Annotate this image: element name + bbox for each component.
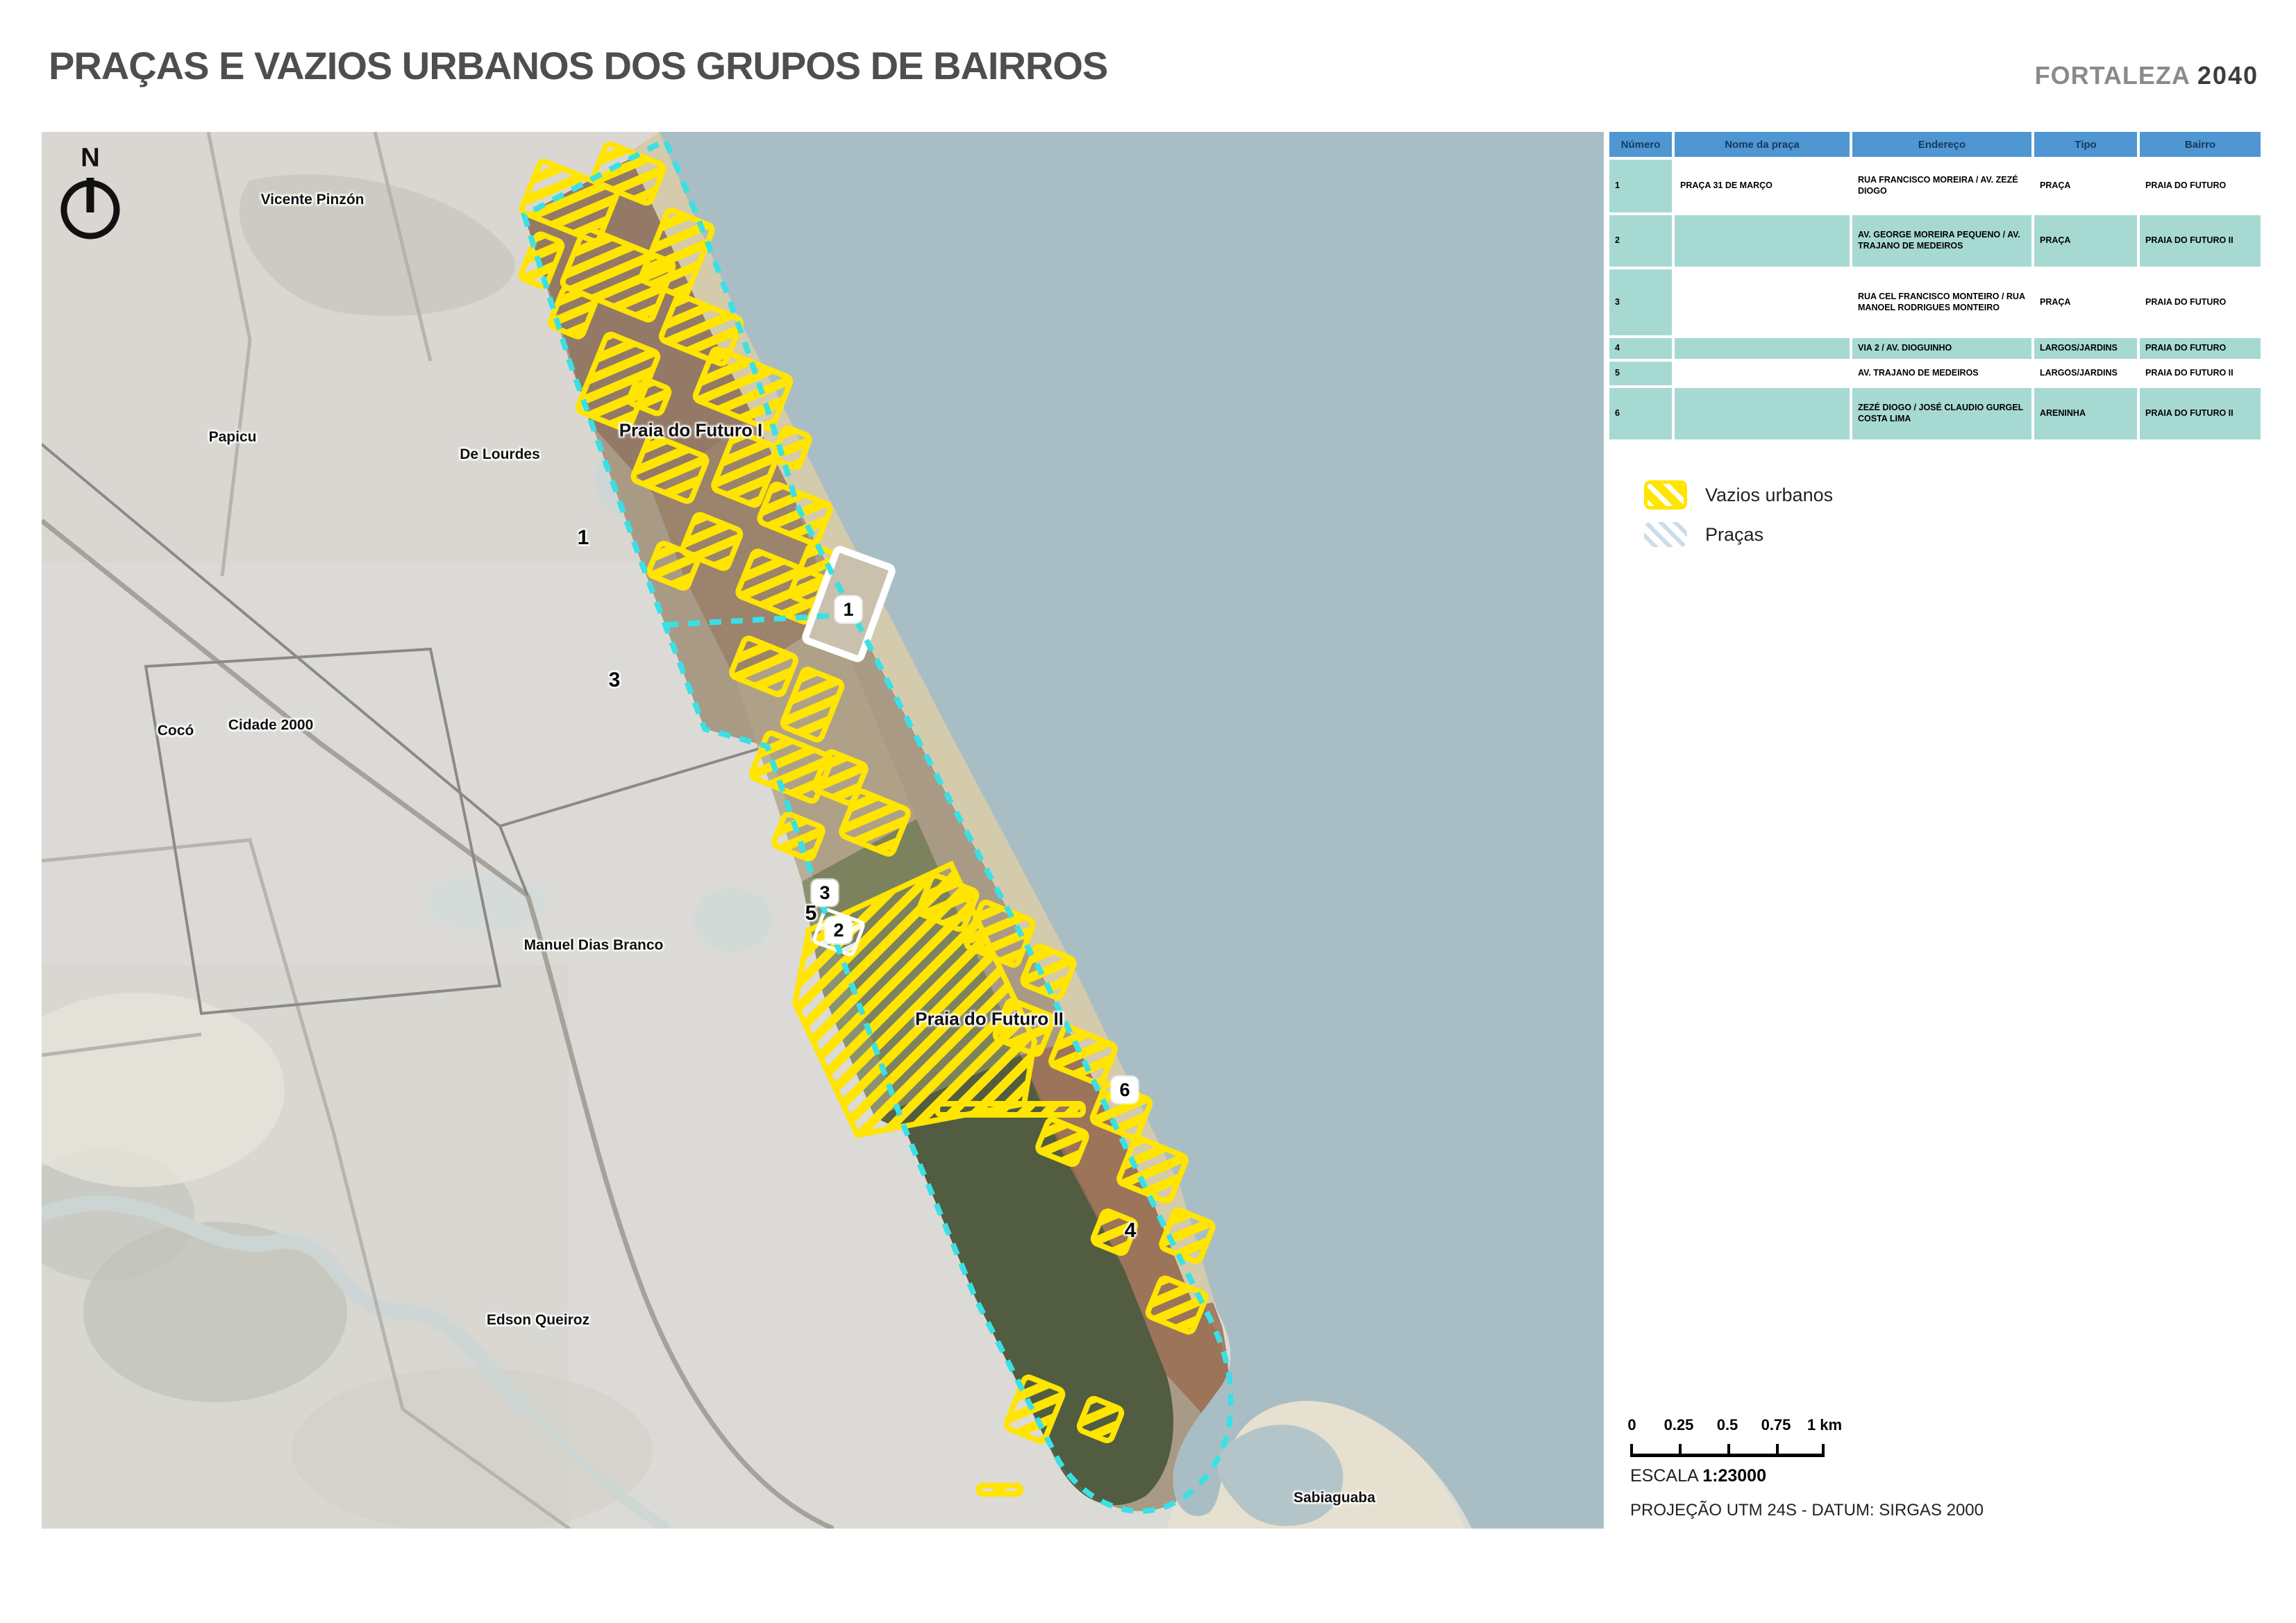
scale-tick-1: 0.25	[1664, 1416, 1694, 1434]
area-label-cidade-2000: Cidade 2000	[228, 717, 314, 734]
escala-label: ESCALA	[1630, 1466, 1698, 1486]
col-header-bairro: Bairro	[2140, 132, 2261, 157]
praca-marker-6: 6	[1112, 1077, 1138, 1103]
table-row-6-cell-bairro: PRAIA DO FUTURO II	[2140, 388, 2261, 439]
area-label-de-lourdes: De Lourdes	[460, 446, 540, 463]
table-row-3-cell-bairro: PRAIA DO FUTURO	[2140, 269, 2261, 335]
praca-marker-2: 2	[826, 917, 852, 943]
table-row-4-cell-numero: 4	[1609, 338, 1672, 359]
area-label-manuel-dias-branco: Manuel Dias Branco	[524, 937, 664, 954]
legend: Vazios urbanos Praças	[1644, 480, 1833, 560]
table-row-2-cell-numero: 2	[1609, 215, 1672, 267]
legend-label: Praças	[1705, 524, 1763, 546]
brand-year: 2040	[2197, 61, 2259, 90]
north-label: N	[81, 144, 99, 174]
table-row-6-cell-tipo: ARENINHA	[2034, 388, 2137, 439]
table-row-3-cell-tipo: PRAÇA	[2034, 269, 2137, 335]
scale-bar-line	[1630, 1443, 1825, 1457]
col-header-numero: Número	[1609, 132, 1672, 157]
area-label-coc-: Cocó	[158, 723, 194, 739]
table-row-5-cell-bairro: PRAIA DO FUTURO II	[2140, 362, 2261, 385]
table-row-1-cell-bairro: PRAIA DO FUTURO	[2140, 160, 2261, 212]
area-label-sabiaguaba: Sabiaguaba	[1293, 1490, 1375, 1506]
escala-text: ESCALA 1:23000	[1630, 1466, 1766, 1486]
legend-item-vazios: Vazios urbanos	[1644, 480, 1833, 510]
table-row-4-cell-bairro: PRAIA DO FUTURO	[2140, 338, 2261, 359]
col-header-endereco: Endereço	[1852, 132, 2031, 157]
table-row-2-cell-nome	[1675, 215, 1850, 267]
praca-marker-1: 1	[835, 596, 862, 623]
table-row-6-cell-endereco: ZEZÉ DIOGO / JOSÉ CLAUDIO GURGEL COSTA L…	[1852, 388, 2031, 439]
praca-marker-5: 5	[805, 902, 817, 925]
map: N Vicente PinzónPapicuDe LourdesCocóCida…	[42, 132, 1604, 1529]
map-graphic	[42, 132, 1604, 1529]
table-row-4-cell-tipo: LARGOS/JARDINS	[2034, 338, 2137, 359]
scale-tick-4: 1 km	[1807, 1416, 1842, 1434]
table-row-3-cell-endereco: RUA CEL FRANCISCO MONTEIRO / RUA MANOEL …	[1852, 269, 2031, 335]
table-row-5-cell-numero: 5	[1609, 362, 1672, 385]
praca-marker-4: 4	[1125, 1219, 1137, 1243]
page-title: PRAÇAS E VAZIOS URBANOS DOS GRUPOS DE BA…	[49, 43, 1107, 88]
vazios-urbanos-swatch-icon	[1644, 480, 1687, 510]
table-row-3-cell-nome	[1675, 269, 1850, 335]
col-header-tipo: Tipo	[2034, 132, 2137, 157]
page: PRAÇAS E VAZIOS URBANOS DOS GRUPOS DE BA…	[0, 0, 2296, 1623]
table-row-1-cell-tipo: PRAÇA	[2034, 160, 2137, 212]
table-row-6-cell-numero: 6	[1609, 388, 1672, 439]
legend-label: Vazios urbanos	[1705, 485, 1833, 506]
area-label-vicente-pinz-n: Vicente Pinzón	[261, 192, 364, 208]
scale-bar-labels: 00.250.50.751 km	[1630, 1416, 1825, 1437]
table-row-4-cell-nome	[1675, 338, 1850, 359]
table-row-3-cell-numero: 3	[1609, 269, 1672, 335]
scale-tick-0: 0	[1627, 1416, 1636, 1434]
table-row-1-cell-numero: 1	[1609, 160, 1672, 212]
table-row-4-cell-endereco: VIA 2 / AV. DIOGUINHO	[1852, 338, 2031, 359]
brand: FORTALEZA 2040	[2035, 61, 2259, 90]
area-label-praia-do-futuro-i: Praia do Futuro I	[619, 420, 763, 442]
projecao-text: PROJEÇÃO UTM 24S - DATUM: SIRGAS 2000	[1630, 1501, 1984, 1520]
area-label-praia-do-futuro-ii: Praia do Futuro II	[915, 1009, 1064, 1030]
table-row-6-cell-nome	[1675, 388, 1850, 439]
scale-tick-3: 0.75	[1761, 1416, 1791, 1434]
brand-name: FORTALEZA	[2035, 61, 2190, 90]
table-row-5-cell-tipo: LARGOS/JARDINS	[2034, 362, 2137, 385]
scale-tick-2: 0.5	[1717, 1416, 1738, 1434]
table-row-5-cell-nome	[1675, 362, 1850, 385]
col-header-nome: Nome da praça	[1675, 132, 1850, 157]
table-row-1-cell-nome: PRAÇA 31 DE MARÇO	[1675, 160, 1850, 212]
area-label-papicu: Papicu	[209, 429, 257, 446]
table-row-2-cell-tipo: PRAÇA	[2034, 215, 2137, 267]
pracas-table: Número Nome da praça Endereço Tipo Bairr…	[1609, 132, 2261, 439]
table-row-1-cell-endereco: RUA FRANCISCO MOREIRA / AV. ZEZÉ DIOGO	[1852, 160, 2031, 212]
praca-marker-1: 1	[578, 526, 589, 550]
table-row-5-cell-endereco: AV. TRAJANO DE MEDEIROS	[1852, 362, 2031, 385]
table-row-2-cell-bairro: PRAIA DO FUTURO II	[2140, 215, 2261, 267]
legend-item-pracas: Praças	[1644, 522, 1833, 547]
pracas-swatch-icon	[1644, 522, 1687, 547]
escala-value: 1:23000	[1702, 1466, 1766, 1486]
praca-marker-3: 3	[609, 668, 621, 692]
area-label-edson-queiroz: Edson Queiroz	[487, 1312, 589, 1329]
scale-bar: 00.250.50.751 km	[1630, 1416, 1825, 1454]
table-row-2-cell-endereco: AV. GEORGE MOREIRA PEQUENO / AV. TRAJANO…	[1852, 215, 2031, 267]
